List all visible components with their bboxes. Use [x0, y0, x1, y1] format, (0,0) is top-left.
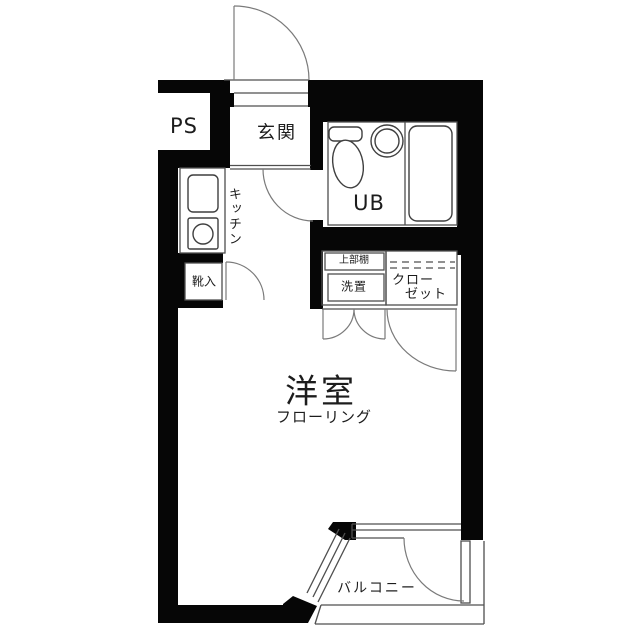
floorplan-canvas: PS 玄関 UB キッチン 靴入 上部棚 洗置 クロー ゼット 洋室 フローリン… [0, 0, 640, 640]
bathtub [409, 126, 452, 221]
closet-label-line2: ゼット [405, 288, 447, 302]
floorplan-drawing [0, 0, 640, 640]
entrance-label: 玄関 [257, 125, 297, 144]
wall-above-shoebox [158, 253, 223, 263]
wall-below-ub [312, 227, 460, 251]
wash-basin-inner [375, 129, 399, 153]
wall-shoebox-left [158, 263, 185, 300]
unit-bath-label: UB [353, 192, 385, 214]
shoe-cabinet-label: 靴入 [192, 276, 216, 289]
closet-door-arc [387, 309, 456, 371]
balcony-door-leaf [461, 541, 470, 603]
diagonal-window-line-3 [307, 529, 339, 593]
wall-wedge-window-bottom [283, 596, 317, 623]
main-room-label: 洋室 [285, 375, 357, 410]
entrance-door-arc [234, 6, 309, 80]
stove-burner [193, 224, 213, 244]
wall-top-right [308, 80, 483, 93]
wall-below-ps [158, 150, 230, 168]
wall-below-shoebox [158, 300, 223, 308]
hall-door-arc [263, 169, 313, 221]
wall-right-upper [457, 80, 483, 255]
wall-hall-ub-upper [310, 93, 323, 170]
flooring-label: フローリング [276, 410, 372, 426]
toilet-bowl [329, 138, 367, 190]
toilet-tank [329, 127, 362, 141]
kitchen-label: キッチン [226, 187, 240, 247]
washer-space-label: 洗置 [341, 281, 367, 294]
washer-door-arc-left [323, 309, 354, 339]
closet-label-line1: クロー [392, 274, 434, 288]
balcony-label: バルコニー [337, 582, 417, 597]
upper-shelf-label: 上部棚 [339, 256, 369, 267]
wall-entry-nub-left [210, 93, 234, 107]
ps-label: PS [170, 115, 198, 137]
shoe-cabinet-door-arc [226, 262, 264, 300]
wall-left [158, 168, 178, 623]
washer-door-arc-right [354, 309, 385, 339]
wall-bottom [158, 605, 298, 623]
wall-right-lower [461, 255, 483, 540]
wall-above-ub [310, 93, 460, 122]
kitchen-sink [188, 175, 218, 212]
